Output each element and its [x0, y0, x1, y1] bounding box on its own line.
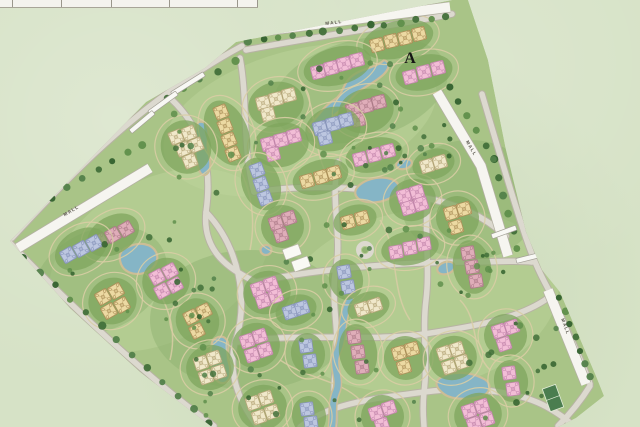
building — [281, 87, 297, 103]
tree-icon — [397, 19, 405, 27]
tree-icon — [268, 80, 274, 86]
tree-icon — [244, 37, 252, 45]
tree-icon — [171, 111, 178, 118]
tree-icon — [300, 114, 305, 119]
tree-icon — [320, 372, 324, 376]
tree-icon — [175, 393, 182, 400]
building — [502, 366, 517, 381]
tree-icon — [360, 254, 364, 258]
tree-icon — [167, 237, 172, 242]
tree-icon — [52, 282, 58, 288]
tree-icon — [484, 253, 489, 258]
tree-icon — [114, 247, 119, 252]
tree-icon — [491, 251, 495, 255]
tree-icon — [465, 293, 470, 298]
tree-icon — [289, 32, 295, 38]
tree-icon — [367, 267, 371, 271]
tree-icon — [513, 245, 520, 252]
legend-cell — [0, 0, 13, 7]
legend-cell — [170, 0, 238, 7]
tree-icon — [316, 65, 323, 72]
tree-icon — [228, 151, 235, 158]
building — [369, 37, 385, 53]
tree-icon — [213, 190, 219, 196]
tree-icon — [447, 228, 452, 233]
tree-icon — [402, 154, 407, 159]
tree-icon — [553, 326, 558, 331]
tree-icon — [539, 394, 543, 398]
building — [338, 112, 354, 128]
tree-icon — [61, 307, 67, 313]
tree-icon — [324, 222, 330, 228]
tree-icon — [275, 34, 281, 40]
tree-icon — [67, 297, 73, 303]
tree-icon — [83, 309, 89, 315]
tree-icon — [339, 76, 343, 80]
tree-icon — [382, 167, 388, 173]
tree-icon — [357, 417, 362, 422]
building — [317, 130, 333, 146]
tree-icon — [488, 268, 493, 273]
building — [286, 128, 302, 144]
tree-icon — [248, 366, 254, 372]
tree-icon — [490, 156, 497, 163]
tree-icon — [556, 295, 562, 301]
tree-icon — [377, 82, 383, 88]
tree-icon — [146, 234, 153, 241]
tree-icon — [381, 22, 387, 28]
tree-icon — [417, 145, 424, 152]
tree-icon — [390, 123, 396, 129]
tree-icon — [423, 152, 427, 156]
tree-icon — [254, 141, 258, 145]
tree-icon — [203, 400, 207, 404]
tree-icon — [474, 263, 480, 269]
tree-icon — [488, 349, 494, 355]
building — [388, 244, 403, 259]
tree-icon — [144, 364, 152, 372]
tree-icon — [36, 269, 44, 277]
tree-icon — [374, 368, 379, 373]
tree-icon — [352, 146, 356, 150]
tree-icon — [363, 163, 368, 168]
tree-icon — [257, 373, 261, 377]
tree-icon — [261, 36, 268, 43]
tree-icon — [202, 372, 207, 377]
tree-icon — [173, 145, 179, 151]
tree-icon — [194, 357, 199, 362]
tree-icon — [417, 233, 422, 238]
building — [380, 143, 396, 159]
tree-icon — [499, 192, 507, 200]
tree-icon — [541, 364, 547, 370]
tree-icon — [513, 399, 520, 406]
tree-icon — [463, 112, 470, 119]
building — [402, 69, 418, 85]
tree-icon — [204, 413, 209, 418]
tree-icon — [277, 386, 281, 390]
tree-icon — [34, 204, 41, 211]
tree-icon — [573, 334, 580, 341]
tree-icon — [189, 313, 195, 319]
tree-icon — [231, 57, 239, 65]
tree-icon — [550, 361, 556, 367]
tree-icon — [197, 314, 202, 319]
tree-icon — [455, 98, 462, 105]
tree-icon — [536, 369, 541, 374]
tree-icon — [273, 411, 279, 417]
building — [371, 94, 387, 110]
tree-icon — [197, 285, 203, 291]
tree-icon — [421, 134, 426, 139]
block-a-marker: A — [404, 50, 416, 67]
building — [336, 264, 351, 279]
tree-icon — [495, 174, 502, 181]
tree-icon — [459, 290, 463, 294]
building — [304, 416, 319, 427]
tree-icon — [447, 136, 452, 141]
tree-icon — [577, 348, 583, 354]
tree-icon — [562, 308, 570, 316]
tree-icon — [319, 27, 327, 35]
tree-icon — [364, 359, 369, 364]
tree-icon — [393, 99, 399, 105]
tree-icon — [332, 172, 336, 176]
tree-icon — [367, 60, 373, 66]
tree-icon — [399, 161, 403, 165]
tree-icon — [174, 279, 180, 285]
building — [460, 245, 475, 260]
tree-icon — [581, 360, 588, 367]
tree-icon — [342, 222, 347, 227]
tree-icon — [173, 301, 178, 306]
building — [416, 236, 431, 251]
tree-icon — [398, 106, 403, 111]
tree-icon — [320, 151, 327, 158]
building — [300, 402, 315, 417]
building — [303, 354, 318, 369]
tree-icon — [70, 271, 74, 275]
tree-icon — [177, 175, 182, 180]
tree-icon — [212, 276, 217, 281]
building — [506, 382, 521, 397]
building — [397, 30, 413, 46]
tree-icon — [164, 317, 168, 321]
tree-icon — [177, 130, 181, 134]
tree-icon — [98, 321, 106, 329]
building — [416, 64, 432, 80]
tree-icon — [429, 143, 435, 149]
tree-icon — [126, 309, 130, 313]
tree-icon — [351, 25, 358, 32]
tree-icon — [173, 220, 177, 224]
tree-icon — [447, 153, 452, 158]
tree-icon — [187, 143, 194, 150]
tree-icon — [306, 30, 313, 37]
tree-icon — [63, 184, 70, 191]
tree-icon — [301, 86, 306, 91]
tree-icon — [525, 391, 529, 395]
tree-icon — [96, 166, 102, 172]
tree-icon — [49, 195, 56, 202]
legend-cell — [13, 0, 62, 7]
tree-icon — [191, 288, 196, 293]
tree-icon — [299, 337, 304, 342]
tree-icon — [322, 283, 328, 289]
tree-icon — [339, 291, 344, 296]
tree-icon — [386, 227, 393, 234]
tree-icon — [206, 319, 210, 323]
tree-icon — [311, 313, 315, 317]
tree-icon — [19, 254, 27, 262]
tree-icon — [367, 21, 375, 29]
tree-icon — [412, 400, 416, 404]
tree-icon — [368, 146, 372, 150]
tree-icon — [124, 149, 131, 156]
tree-icon — [412, 16, 419, 23]
tree-icon — [109, 158, 115, 164]
tree-icon — [412, 125, 417, 130]
tree-icon — [101, 241, 107, 247]
tree-icon — [300, 370, 305, 375]
tree-icon — [403, 226, 410, 233]
tree-icon — [208, 391, 213, 396]
building — [366, 147, 382, 163]
tree-icon — [246, 395, 251, 400]
tree-icon — [348, 182, 354, 188]
tree-icon — [466, 360, 473, 367]
tree-icon — [327, 307, 333, 313]
tree-icon — [210, 371, 216, 377]
tree-icon — [159, 379, 165, 385]
tree-icon — [210, 286, 215, 291]
tree-icon — [387, 61, 393, 67]
tree-icon — [179, 268, 183, 272]
building — [468, 273, 483, 288]
tree-icon — [336, 27, 343, 34]
tree-icon — [367, 246, 372, 251]
tree-icon — [429, 16, 435, 22]
tree-icon — [483, 142, 490, 149]
tree-icon — [214, 68, 221, 75]
tree-icon — [192, 326, 196, 330]
tree-icon — [113, 336, 120, 343]
legend-cell — [112, 0, 170, 7]
building — [347, 330, 362, 345]
legend-table-cutoff — [0, 0, 258, 8]
building — [430, 60, 446, 76]
tree-icon — [533, 334, 540, 341]
tree-icon — [473, 127, 480, 134]
tree-icon — [205, 419, 213, 427]
site-plan-map: MALL MALL MALL MALL A — [0, 0, 640, 427]
tree-icon — [442, 123, 446, 127]
building — [411, 26, 427, 42]
tree-icon — [504, 210, 512, 218]
legend-cell — [238, 0, 258, 7]
tree-icon — [435, 261, 439, 265]
tree-icon — [190, 405, 198, 413]
tree-icon — [514, 322, 518, 326]
building — [402, 240, 417, 255]
tree-icon — [387, 164, 394, 171]
legend-cell — [62, 0, 112, 7]
tree-icon — [442, 13, 449, 20]
tree-icon — [138, 141, 146, 149]
tree-icon — [483, 416, 488, 421]
building — [349, 52, 365, 68]
building — [351, 345, 366, 360]
tree-icon — [200, 344, 207, 351]
tree-icon — [179, 143, 184, 148]
tree-icon — [129, 352, 136, 359]
master-plan-image: MALL MALL MALL MALL A — [0, 0, 640, 427]
tree-icon — [481, 254, 485, 258]
tree-icon — [333, 398, 337, 402]
tree-icon — [446, 83, 453, 90]
tree-icon — [586, 373, 593, 380]
building — [383, 33, 399, 49]
tree-icon — [501, 270, 505, 274]
tree-icon — [396, 145, 402, 151]
tree-icon — [384, 151, 388, 155]
tree-icon — [438, 281, 444, 287]
tree-icon — [79, 175, 86, 182]
